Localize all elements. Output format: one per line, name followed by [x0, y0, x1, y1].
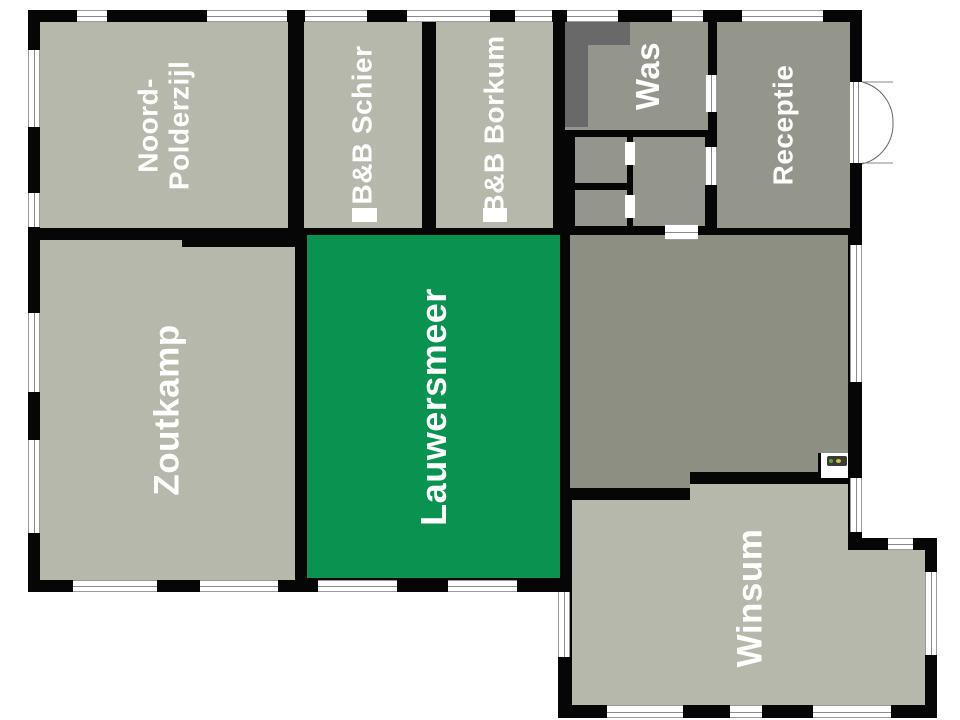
window	[888, 538, 913, 550]
window	[318, 580, 397, 592]
door-frame-line	[858, 82, 859, 163]
room-receptie[interactable]	[717, 22, 850, 228]
door-frame-line	[853, 82, 854, 163]
counter-icon	[565, 22, 588, 127]
window	[813, 705, 891, 718]
door-opening-hall-receptie[interactable]	[705, 147, 717, 185]
window	[850, 245, 862, 382]
window	[207, 10, 287, 22]
room-central-hall[interactable]	[690, 235, 848, 472]
floorplan-canvas: Noord- Polderzijl B&B Schier B&B Borkum …	[0, 0, 960, 720]
window	[742, 10, 823, 22]
room-noord-polderzijl[interactable]	[40, 22, 288, 228]
window	[407, 10, 490, 22]
window	[73, 580, 157, 592]
window	[305, 10, 367, 22]
fixture-green-led-icon	[829, 459, 833, 463]
window	[77, 10, 107, 22]
room-central-hall[interactable]	[570, 235, 690, 488]
door-threshold-schier[interactable]	[352, 208, 377, 222]
door-opening-toilet-lower[interactable]	[625, 195, 635, 218]
window	[28, 50, 40, 127]
room-winsum[interactable]	[848, 550, 925, 705]
window	[200, 580, 278, 592]
door-threshold-borkum[interactable]	[483, 208, 507, 222]
wall-zoutkamp-step	[182, 240, 295, 247]
room-winsum[interactable]	[690, 484, 848, 500]
room-bb-borkum[interactable]	[436, 22, 553, 228]
fixture-yellow-led-icon	[836, 459, 841, 463]
room-zoutkamp[interactable]	[40, 240, 295, 580]
window	[28, 313, 40, 392]
room-toilet-upper[interactable]	[575, 137, 627, 183]
window	[515, 10, 552, 22]
door-opening-toilet-upper[interactable]	[625, 142, 635, 165]
window	[730, 705, 762, 718]
window	[672, 10, 703, 22]
room-lauwersmeer[interactable]	[307, 235, 560, 578]
utility-niche	[818, 453, 848, 478]
window	[558, 592, 570, 657]
window	[925, 572, 937, 655]
entrance-door-opening[interactable]	[850, 82, 862, 163]
window	[28, 193, 40, 227]
window	[448, 580, 517, 592]
door-opening-hall-south[interactable]	[665, 224, 698, 240]
window	[567, 10, 618, 22]
room-toilet-lower[interactable]	[575, 190, 627, 226]
window	[607, 705, 683, 718]
window	[28, 440, 40, 533]
room-bb-schier[interactable]	[304, 22, 422, 228]
window	[850, 478, 862, 532]
door-opening-was-receptie[interactable]	[705, 75, 717, 112]
room-winsum[interactable]	[572, 500, 848, 705]
room-hallway[interactable]	[633, 137, 705, 226]
